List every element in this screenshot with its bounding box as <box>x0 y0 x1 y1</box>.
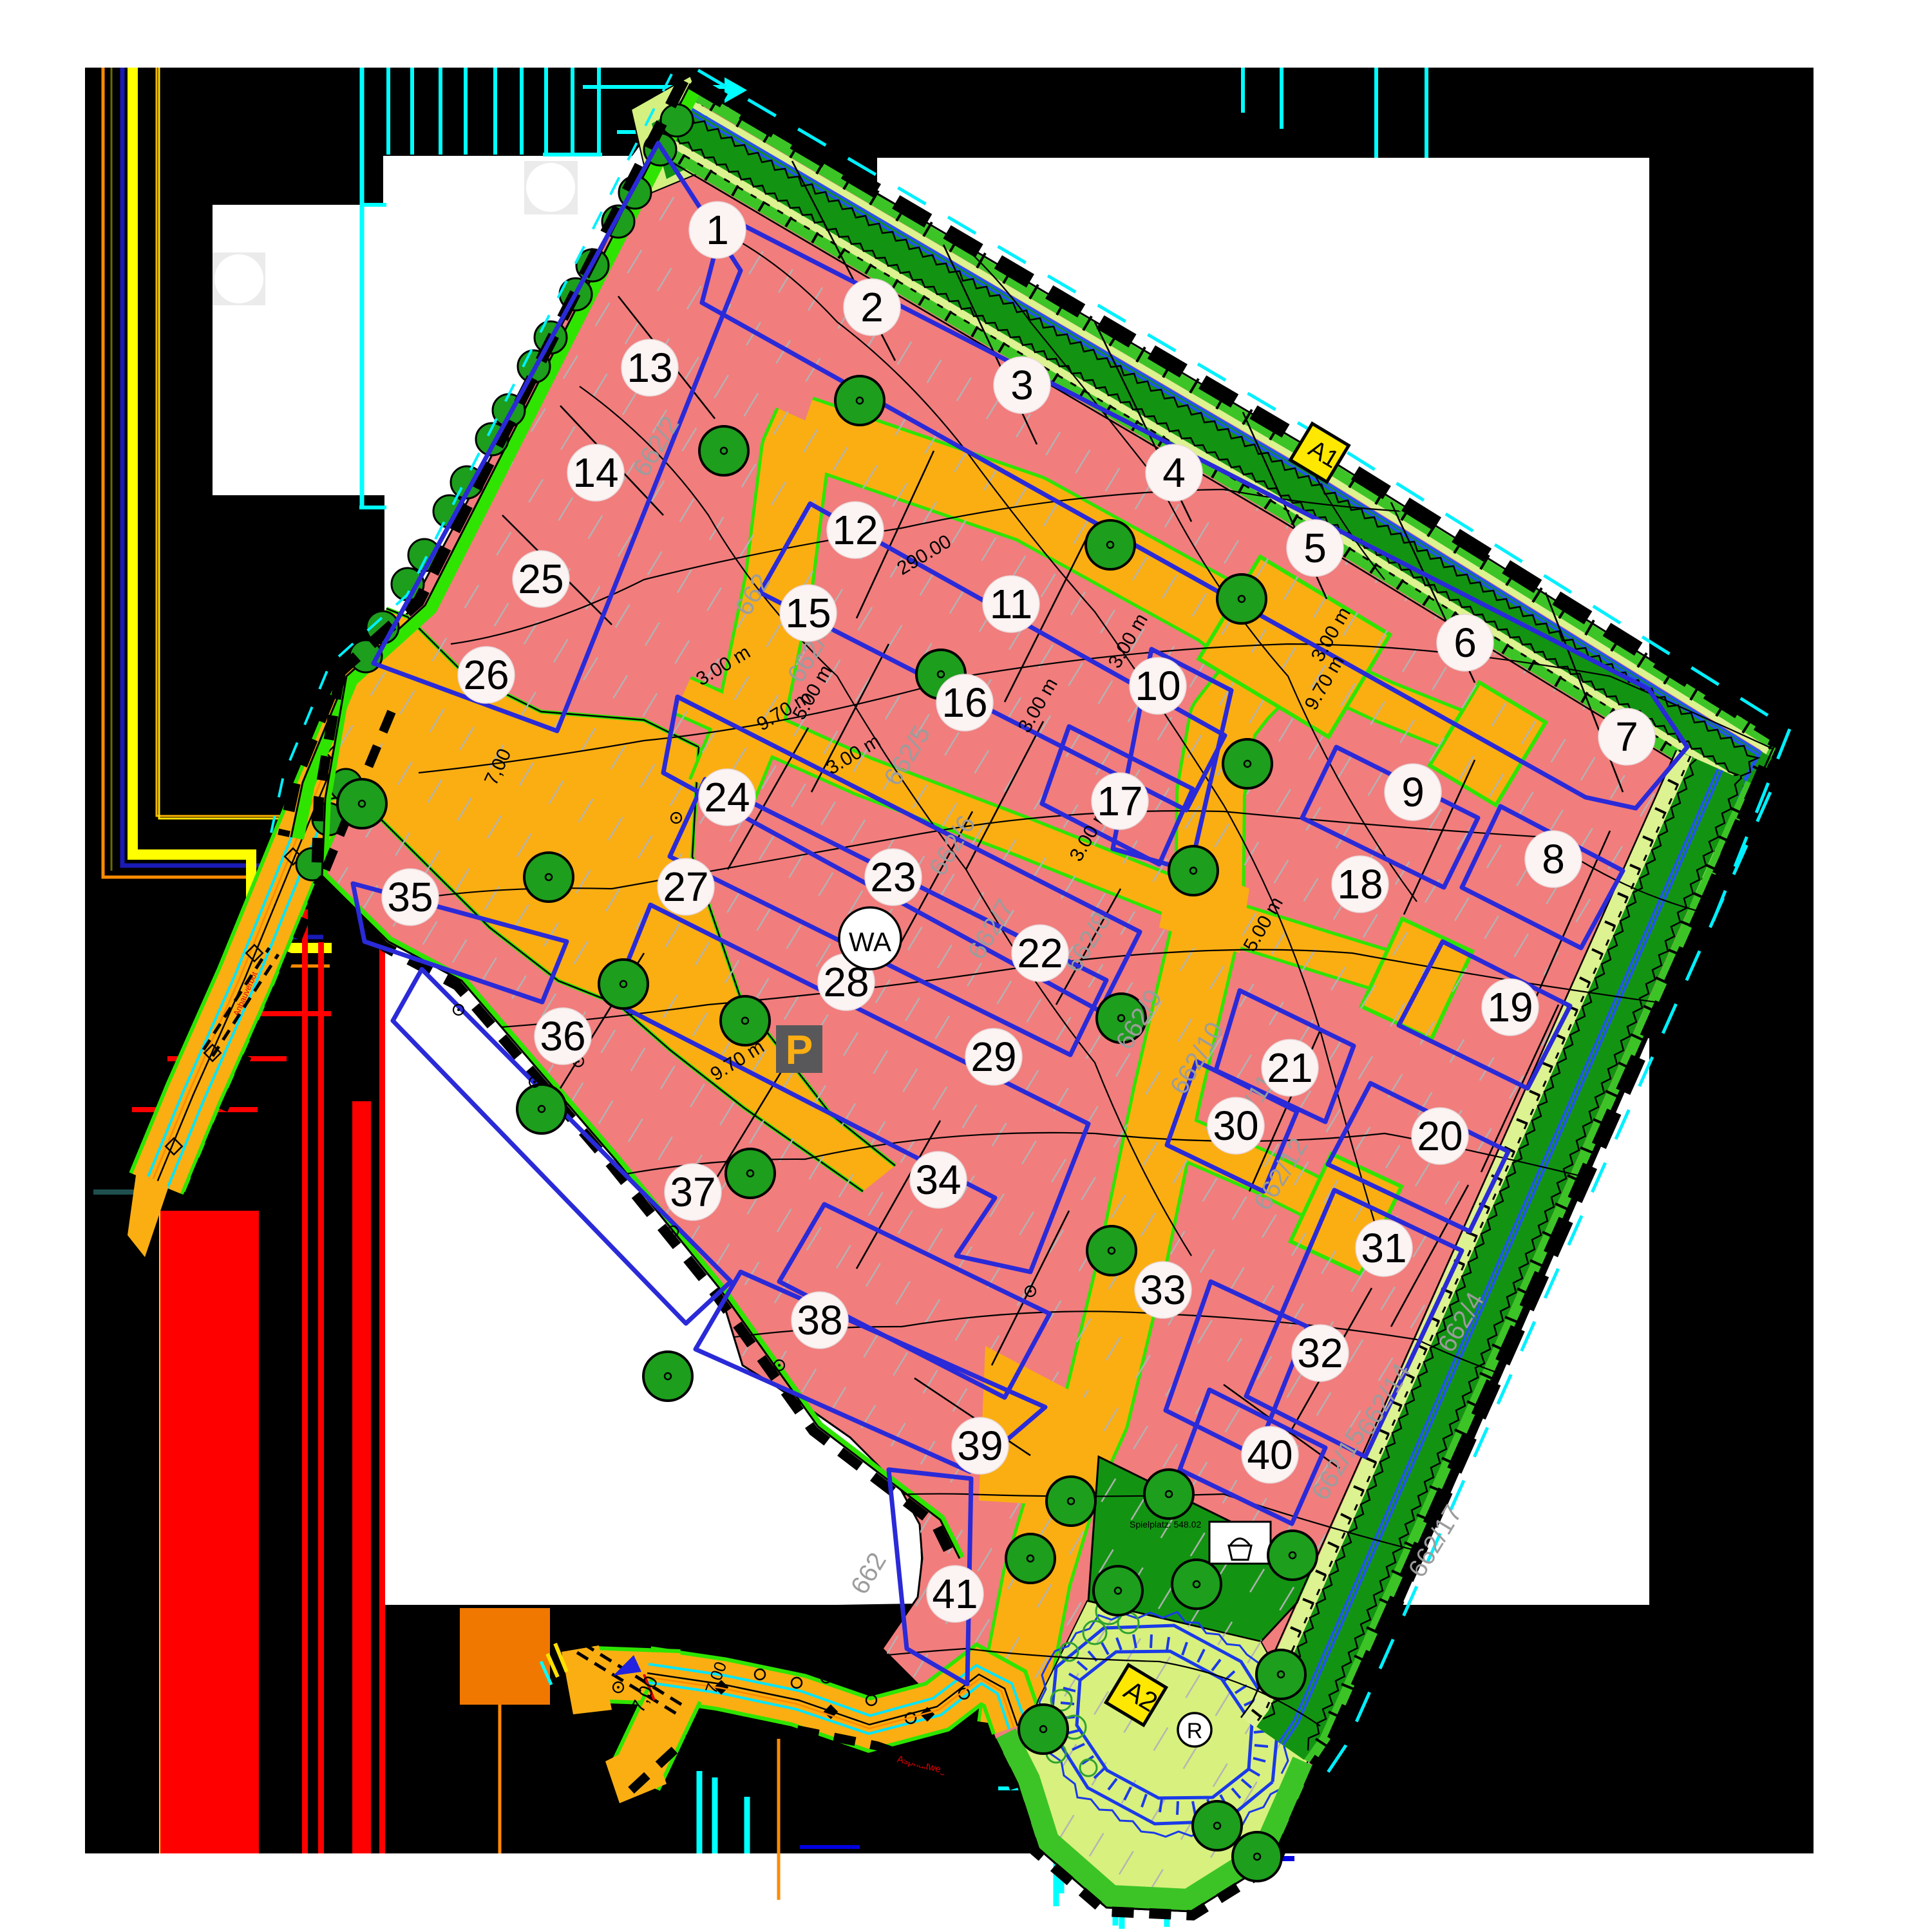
svg-text:41: 41 <box>932 1571 978 1617</box>
svg-text:4: 4 <box>1162 450 1186 496</box>
svg-text:7: 7 <box>1615 714 1638 760</box>
svg-text:30: 30 <box>1213 1103 1258 1149</box>
svg-text:25: 25 <box>518 556 563 602</box>
svg-text:13: 13 <box>627 345 672 391</box>
svg-text:19: 19 <box>1487 984 1533 1030</box>
svg-text:P: P <box>786 1027 813 1073</box>
svg-text:Spielplatz: 548.02: Spielplatz: 548.02 <box>1130 1519 1202 1529</box>
svg-text:1: 1 <box>706 207 729 253</box>
svg-text:9: 9 <box>1401 769 1425 815</box>
svg-text:WA: WA <box>849 927 891 957</box>
svg-text:27: 27 <box>663 864 708 910</box>
svg-text:36: 36 <box>540 1013 585 1059</box>
svg-text:26: 26 <box>463 652 509 698</box>
svg-text:20: 20 <box>1417 1113 1463 1159</box>
svg-text:39: 39 <box>957 1423 1003 1469</box>
svg-text:40: 40 <box>1247 1432 1293 1478</box>
svg-text:10: 10 <box>1135 663 1180 709</box>
svg-text:11: 11 <box>990 581 1032 627</box>
svg-text:16: 16 <box>942 679 987 726</box>
svg-text:8: 8 <box>1542 836 1565 882</box>
svg-text:14: 14 <box>573 450 618 496</box>
svg-text:35: 35 <box>387 874 433 920</box>
svg-text:38: 38 <box>797 1297 842 1343</box>
svg-text:15: 15 <box>785 590 831 636</box>
svg-text:24: 24 <box>704 774 750 820</box>
svg-text:31: 31 <box>1361 1225 1406 1271</box>
svg-text:12: 12 <box>832 507 878 553</box>
svg-text:18: 18 <box>1337 861 1383 907</box>
svg-text:22: 22 <box>1017 930 1063 976</box>
svg-text:29: 29 <box>971 1034 1016 1080</box>
svg-text:2: 2 <box>860 284 884 330</box>
svg-text:33: 33 <box>1140 1267 1186 1313</box>
svg-text:23: 23 <box>870 854 916 900</box>
svg-text:5: 5 <box>1303 525 1327 571</box>
svg-text:32: 32 <box>1297 1330 1343 1376</box>
svg-text:6: 6 <box>1454 620 1477 666</box>
svg-text:37: 37 <box>670 1169 715 1215</box>
svg-text:21: 21 <box>1267 1045 1312 1091</box>
svg-text:R: R <box>1187 1719 1203 1743</box>
svg-text:17: 17 <box>1097 778 1142 824</box>
svg-text:34: 34 <box>915 1157 961 1203</box>
svg-text:3: 3 <box>1010 362 1034 408</box>
